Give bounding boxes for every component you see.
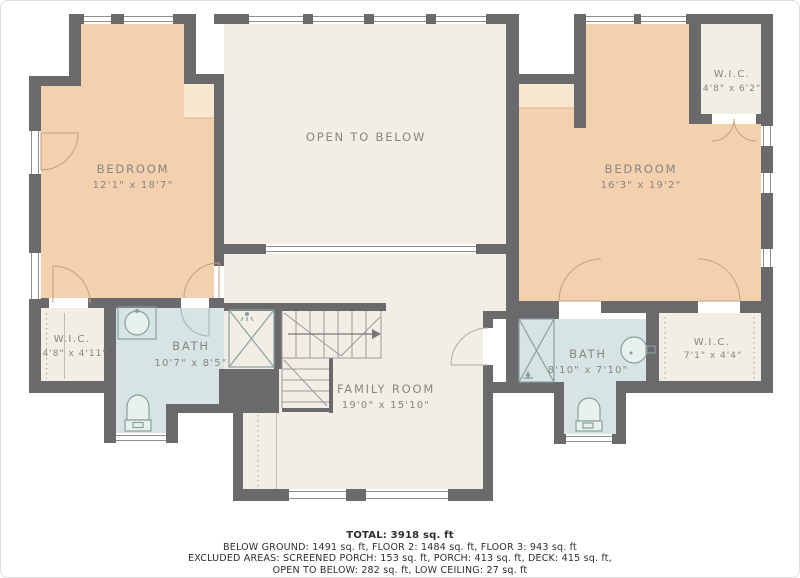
- bath-passage: [493, 319, 506, 382]
- bedroom-left-label: BEDROOM: [97, 162, 170, 176]
- summary-floors: BELOW GROUND: 1491 sq. ft, FLOOR 2: 1484…: [1, 542, 799, 554]
- wic-left-label: W.I.C.: [54, 334, 91, 345]
- wic-left-door-gap: [49, 298, 88, 308]
- sink-icon: [621, 337, 647, 363]
- family-room-dims: 19'0" x 15'10": [342, 400, 430, 411]
- bedroom-right-dims: 16'3" x 19'2": [601, 180, 682, 191]
- bath-left-dims: 10'7" x 8'5": [154, 358, 227, 369]
- family-door-gap: [483, 328, 493, 365]
- summary-excluded: EXCLUDED AREAS: SCREENED PORCH: 153 sq. …: [1, 553, 799, 565]
- wic-right-door-gap: [698, 301, 740, 313]
- open-below-label: OPEN TO BELOW: [306, 130, 426, 144]
- floorplan-drawing: BEDROOM 12'1" x 18'7" OPEN TO BELOW BEDR…: [1, 1, 799, 577]
- wic-left-dims: 4'8" x 4'11": [43, 349, 108, 359]
- summary-excluded2: OPEN TO BELOW: 282 sq. ft, LOW CEILING: …: [1, 565, 799, 577]
- wic-right-label: W.I.C.: [694, 337, 731, 348]
- floorplan-image: BEDROOM 12'1" x 18'7" OPEN TO BELOW BEDR…: [0, 0, 800, 578]
- low-ceiling-strip-right: [519, 84, 574, 108]
- bath-right-dims: 8'10" x 7'10": [548, 365, 629, 376]
- area-summary: TOTAL: 3918 sq. ft BELOW GROUND: 1491 sq…: [1, 530, 799, 576]
- bath-left-door-gap: [181, 298, 209, 308]
- low-ceiling-strip-left: [184, 84, 214, 118]
- wic-top-dims: 4'8" x 6'2": [703, 84, 761, 94]
- bedroom-right-label: BEDROOM: [605, 162, 678, 176]
- bath-right-label: BATH: [569, 347, 607, 361]
- family-room-label: FAMILY ROOM: [337, 382, 435, 396]
- wic-top-label: W.I.C.: [714, 69, 751, 80]
- wic-right-dims: 7'1" x 4'4": [684, 351, 742, 361]
- open-below-railing: [266, 244, 476, 254]
- toilet-icon: [576, 398, 602, 431]
- bath-left-label: BATH: [172, 339, 210, 353]
- bedroom-left-dims: 12'1" x 18'7": [93, 180, 174, 191]
- toilet-icon: [125, 395, 151, 431]
- bath-right-door-gap: [559, 301, 601, 313]
- summary-total: TOTAL: 3918 sq. ft: [1, 530, 799, 542]
